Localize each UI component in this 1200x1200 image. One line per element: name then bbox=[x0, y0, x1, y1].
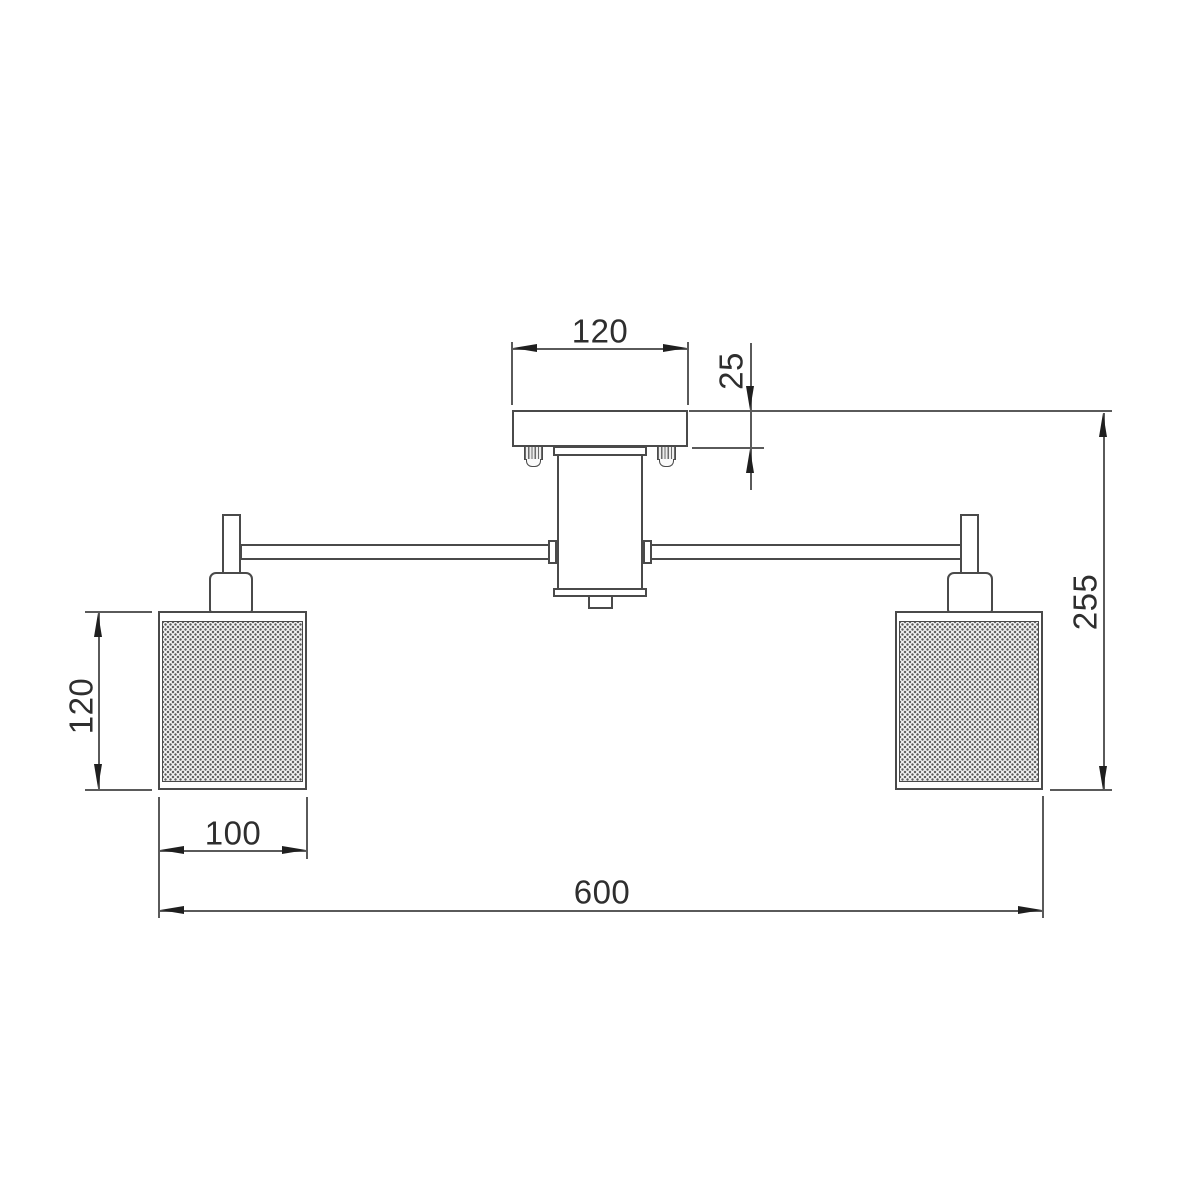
shade-left-mesh bbox=[162, 621, 303, 782]
arm-right bbox=[649, 544, 962, 560]
arrow-shade-width-left bbox=[160, 846, 184, 854]
arrow-overall-height-bottom bbox=[1099, 766, 1107, 790]
dim-label-overall-height: 255 bbox=[1069, 574, 1102, 631]
arm-joint-left bbox=[548, 540, 557, 564]
ext-line-overall-width-right bbox=[1042, 796, 1044, 918]
technical-drawing-canvas: 120 25 255 120 100 600 bbox=[0, 0, 1200, 1200]
dim-label-overall-width: 600 bbox=[574, 876, 631, 909]
ceiling-canopy-plate bbox=[512, 410, 688, 447]
mounting-screw-right bbox=[657, 446, 676, 460]
mounting-screw-right-tip bbox=[659, 459, 674, 467]
dim-label-canopy-width: 120 bbox=[572, 315, 629, 348]
arrow-canopy-width-left bbox=[513, 344, 537, 352]
central-body-nub bbox=[588, 595, 613, 609]
stem-left bbox=[222, 514, 241, 574]
arrow-shade-width-right bbox=[282, 846, 306, 854]
arrow-shade-height-bottom bbox=[94, 764, 102, 788]
socket-right bbox=[947, 572, 993, 613]
dim-label-canopy-height: 25 bbox=[715, 352, 748, 390]
socket-left bbox=[209, 572, 253, 613]
arrow-canopy-height-bottom bbox=[746, 449, 754, 473]
mounting-screw-left bbox=[524, 446, 543, 460]
mounting-screw-left-tip bbox=[526, 459, 541, 467]
stem-right bbox=[960, 514, 979, 574]
arrow-overall-height-top bbox=[1099, 413, 1107, 437]
arrow-canopy-width-right bbox=[663, 344, 687, 352]
arrow-overall-width-left bbox=[160, 906, 184, 914]
arm-joint-right bbox=[643, 540, 652, 564]
ext-line-shade-left-bottom bbox=[85, 789, 152, 791]
arm-left bbox=[240, 544, 551, 560]
ext-line-canopy-right bbox=[687, 342, 689, 405]
ext-line-shade-width-left bbox=[158, 797, 160, 918]
ext-line-plate-top bbox=[689, 410, 1112, 412]
central-body-cylinder bbox=[557, 454, 643, 590]
dim-label-shade-width: 100 bbox=[205, 817, 262, 850]
arrow-shade-height-top bbox=[94, 613, 102, 637]
dim-label-shade-height: 120 bbox=[65, 678, 98, 735]
arrow-overall-width-right bbox=[1018, 906, 1042, 914]
shade-right-mesh bbox=[899, 621, 1039, 782]
